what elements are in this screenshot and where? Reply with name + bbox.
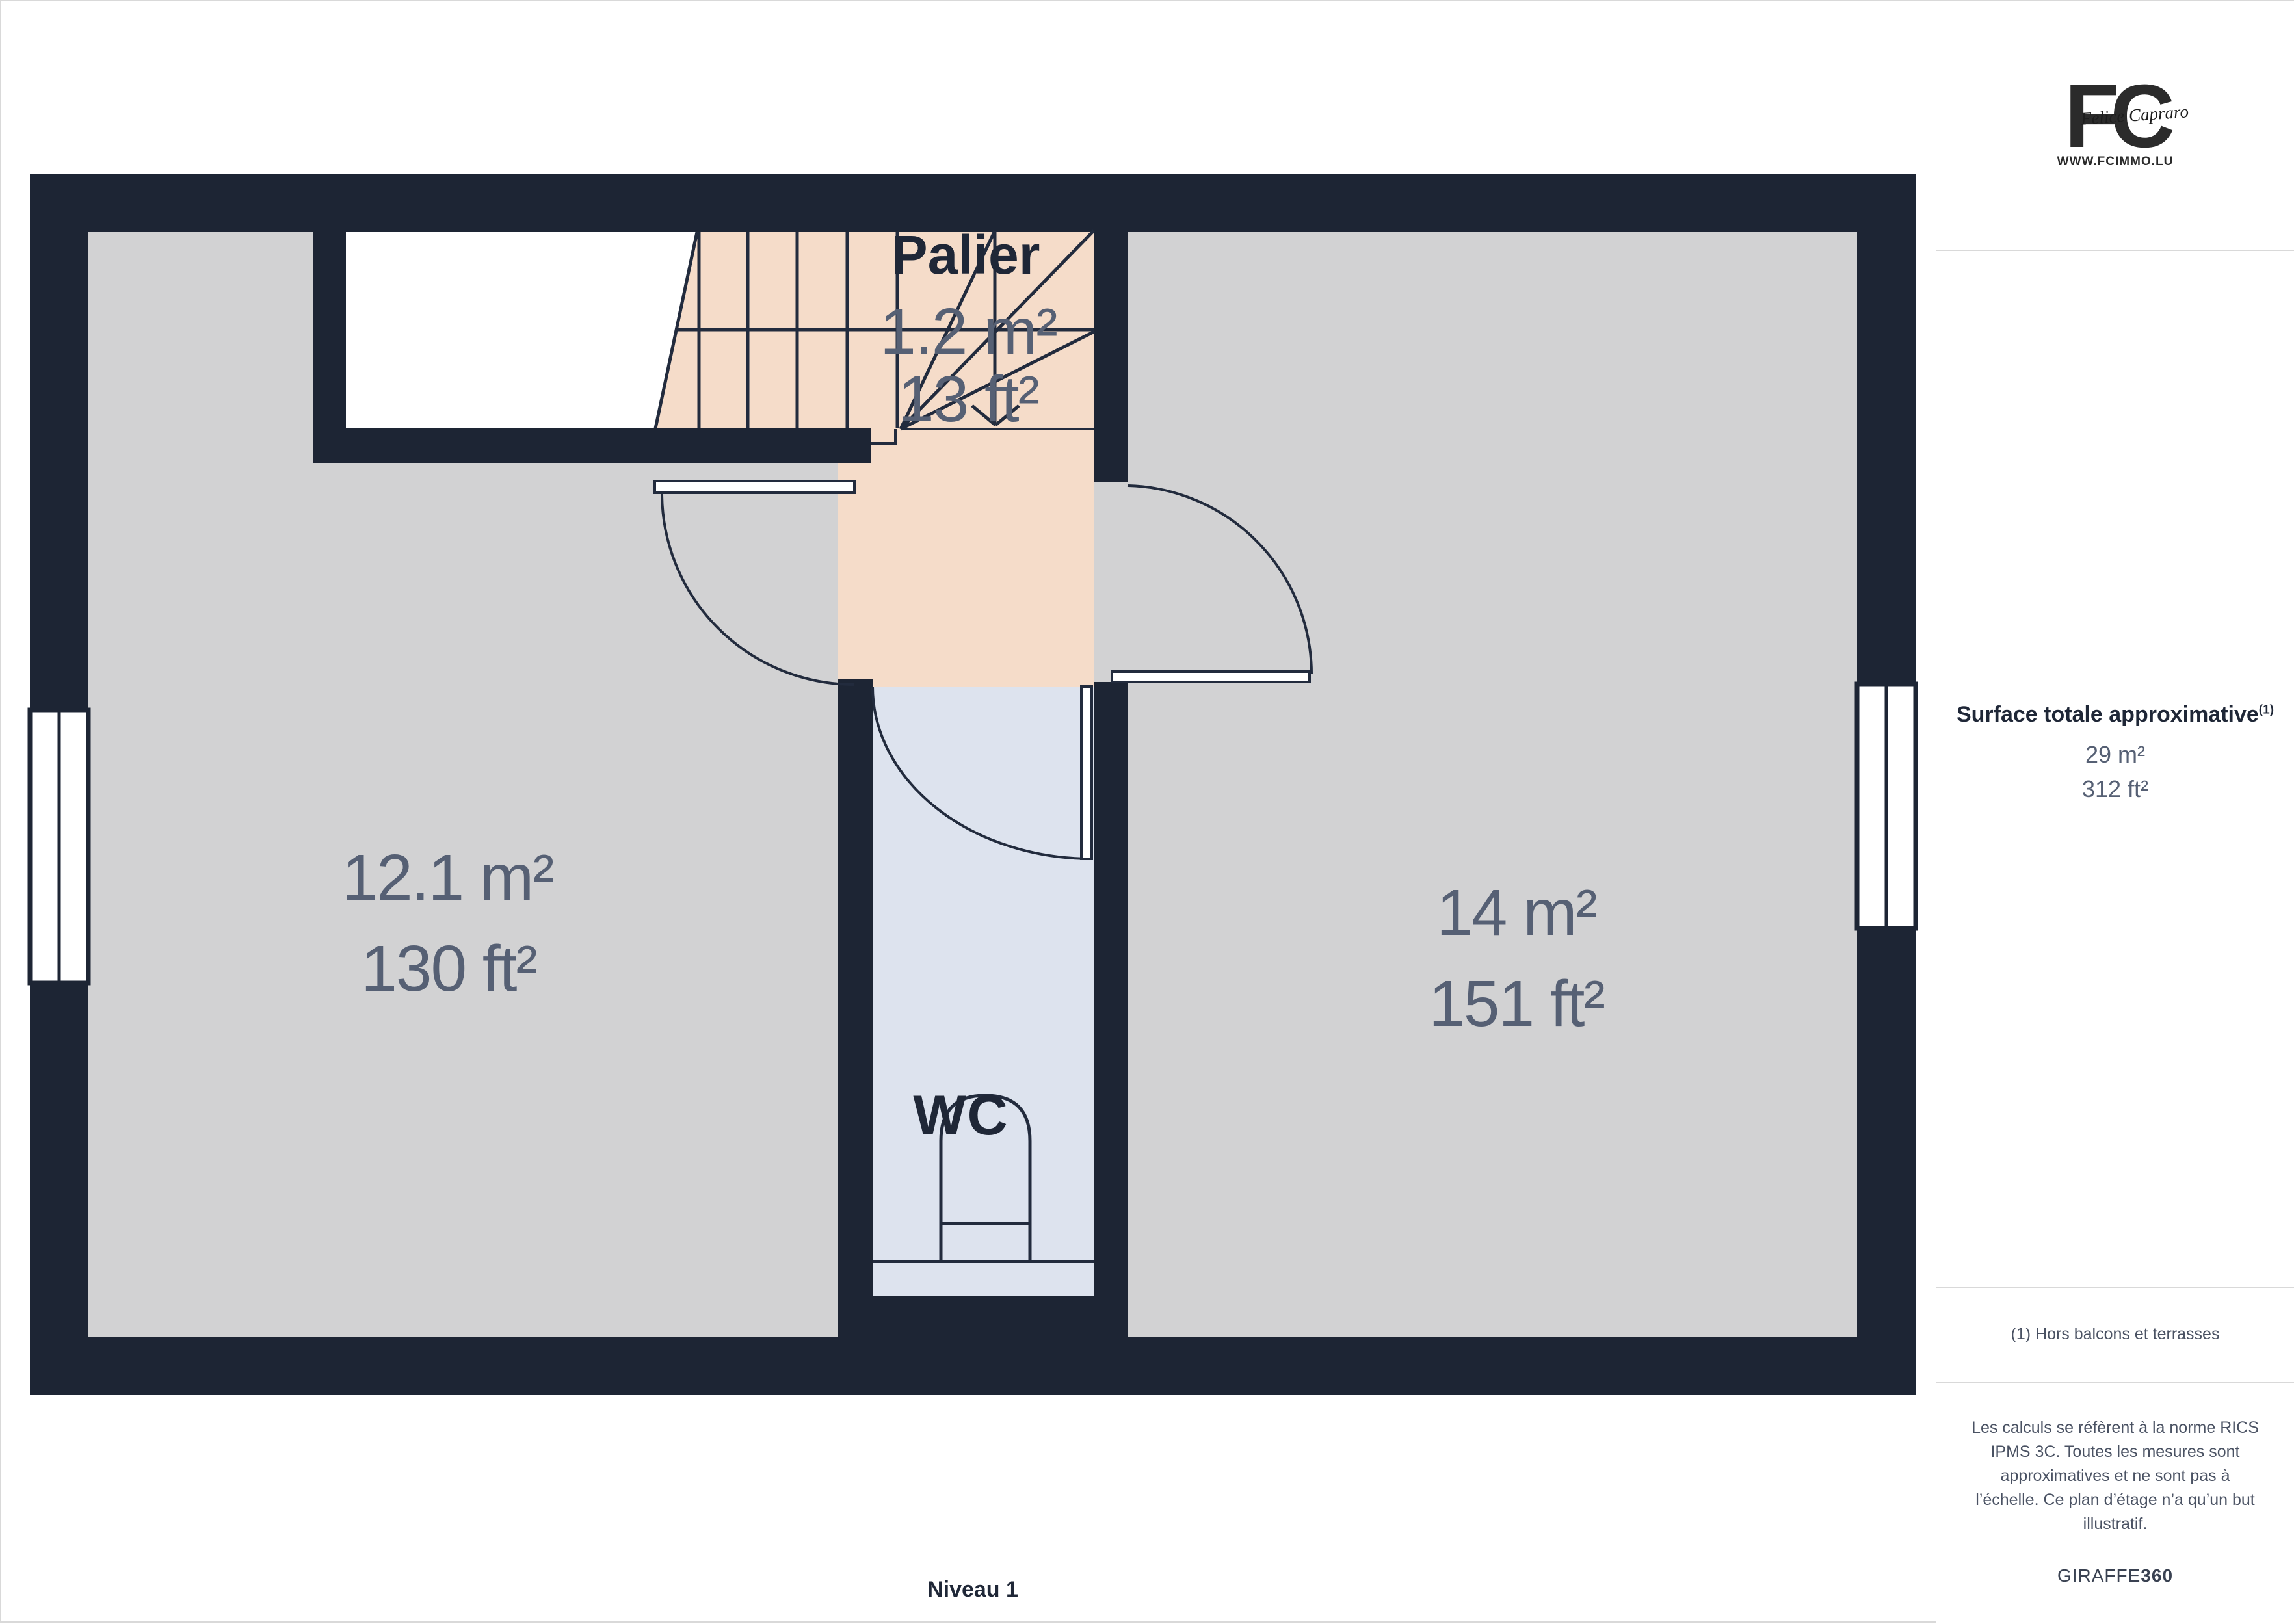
left-room-area-ft2: 130 ft² <box>361 936 536 1001</box>
surface-total-ft2: 312 ft² <box>1936 776 2294 803</box>
legal-line: l’échelle. Ce plan d’étage n’a qu’un but <box>1936 1488 2294 1512</box>
surface-total-title: Surface totale approximative(1) <box>1936 702 2294 727</box>
wall-top <box>30 174 1916 232</box>
wall-corridor-right-upper <box>1094 232 1128 482</box>
surface-total-m2: 29 m² <box>1936 741 2294 768</box>
stair-void-opening <box>346 232 697 428</box>
floorplan-page: Palier 1.2 m² 13 ft² 12.1 m² 130 ft² 14 … <box>0 0 2294 1623</box>
sidebar: FC Felice Capraro WWW.FCIMMO.LU Surface … <box>1936 1 2294 1624</box>
sidebar-section-divider-top <box>1936 250 2294 251</box>
surface-total-superscript: (1) <box>2259 703 2274 717</box>
wall-bottom <box>30 1337 1916 1395</box>
legal-line: IPMS 3C. Toutes les mesures sont <box>1936 1440 2294 1464</box>
palier-area-m2: 1.2 m² <box>880 299 1056 364</box>
wall-stair-base <box>313 428 871 463</box>
right-room-area-ft2: 151 ft² <box>1429 971 1604 1036</box>
brand-normal: GIRAFFE <box>2057 1565 2141 1586</box>
sidebar-section-divider-footnote <box>1936 1287 2294 1288</box>
giraffe360-brand: GIRAFFE360 <box>1936 1565 2294 1586</box>
legal-line: Les calculs se réfèrent à la norme RICS <box>1936 1416 2294 1440</box>
right-room-area-m2: 14 m² <box>1436 880 1596 945</box>
door-right-leaf <box>1112 672 1310 682</box>
legal-line: approximatives et ne sont pas à <box>1936 1464 2294 1488</box>
sidebar-section-divider-legal <box>1936 1382 2294 1383</box>
wall-corridor-right-lower <box>1094 682 1128 1337</box>
legal-line: illustratif. <box>1936 1512 2294 1536</box>
wall-corridor-left <box>838 679 873 1337</box>
legal-disclaimer: Les calculs se réfèrent à la norme RICS … <box>1936 1416 2294 1536</box>
surface-total-title-text: Surface totale approximative <box>1957 702 2259 727</box>
agency-logo: FC Felice Capraro WWW.FCIMMO.LU <box>1936 72 2294 169</box>
wall-corridor-bottom <box>838 1296 1128 1337</box>
left-room-area-m2: 12.1 m² <box>341 845 553 910</box>
palier-area-ft2: 13 ft² <box>898 367 1038 432</box>
footnote-balconies: (1) Hors balcons et terrasses <box>1936 1325 2294 1344</box>
palier-name-label: Palier <box>891 228 1040 282</box>
wc-name-label: WC <box>913 1088 1009 1144</box>
brand-bold: 360 <box>2141 1565 2173 1586</box>
agency-website: WWW.FCIMMO.LU <box>1936 155 2294 169</box>
wall-void-divider <box>313 232 346 463</box>
door-left-leaf <box>655 481 854 493</box>
door-wc-leaf <box>1081 687 1092 859</box>
level-label: Niveau 1 <box>927 1578 1018 1601</box>
